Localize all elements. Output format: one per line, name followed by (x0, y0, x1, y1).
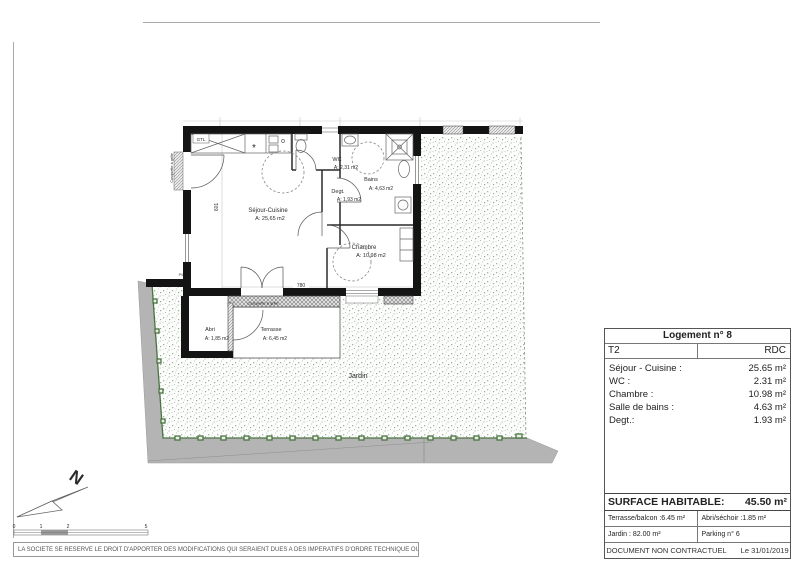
area-row: Séjour - Cuisine : 25.65 m² (609, 362, 786, 375)
pv-label: PV (179, 273, 184, 277)
surface-value: 45.50 m² (745, 496, 787, 508)
scale-mark-2: 2 (67, 524, 70, 530)
apartment-info-table: Logement n° 8 T2 RDC Séjour - Cuisine : … (604, 328, 791, 559)
area-value: 2.31 m² (754, 375, 786, 388)
room-area-terrasse: A: 6,45 m2 (263, 336, 287, 342)
canopy-label: Casquette à grille (247, 301, 279, 306)
fixtures (191, 134, 413, 261)
surface-label: SURFACE HABITABLE: (608, 496, 724, 508)
room-area-abri: A: 1,85 m2 (205, 336, 229, 342)
area-value: 10.98 m² (749, 388, 787, 401)
table-spacer (605, 427, 790, 493)
document-status: DOCUMENT NON CONTRACTUEL (606, 546, 726, 555)
area-value: 25.65 m² (749, 362, 787, 375)
dim-780: 780 (297, 283, 306, 289)
scale-mark-1: 1 (40, 524, 43, 530)
room-label-degt: Degt. (331, 189, 345, 195)
area-label: Séjour - Cuisine : (609, 362, 682, 375)
area-row: Salle de bains : 4.63 m² (609, 401, 786, 414)
apartment-type: T2 (605, 344, 698, 358)
scale-bar: 0 1 2 5 (13, 524, 148, 535)
parking-cell: Parking n° 6 (698, 527, 791, 542)
north-label: N (66, 466, 87, 489)
extras-row: Terrasse/balcon :6.45 m² Abri/séchoir :1… (605, 511, 790, 527)
hob-symbol: * (252, 143, 256, 154)
room-label-jardin: Jardin (348, 373, 367, 380)
area-label: Degt.: (609, 414, 634, 427)
gtl-label: GTL (197, 137, 206, 142)
surface-habitable-row: SURFACE HABITABLE: 45.50 m² (605, 493, 790, 511)
room-label-terrasse: Terrasse (260, 327, 281, 333)
document-footer-row: DOCUMENT NON CONTRACTUEL Le 31/01/2019 (605, 543, 790, 558)
room-area-sejour: A: 25,65 m2 (255, 216, 285, 222)
legal-disclaimer: LA SOCIETE SE RESERVE LE DROIT D'APPORTE… (13, 542, 419, 557)
garden-area (152, 137, 526, 438)
area-row: Chambre : 10.98 m² (609, 388, 786, 401)
jardin-cell: Jardin : 82.00 m² (605, 527, 698, 542)
area-label: Chambre : (609, 388, 653, 401)
area-value: 1.93 m² (754, 414, 786, 427)
room-area-degt: A: 1,93 m2 (337, 197, 361, 203)
room-areas-list: Séjour - Cuisine : 25.65 m² WC : 2.31 m²… (605, 359, 790, 427)
document-date: Le 31/01/2019 (741, 546, 789, 555)
terrasse-balcon-cell: Terrasse/balcon :6.45 m² (605, 511, 698, 526)
area-label: WC : (609, 375, 630, 388)
area-row: Degt.: 1.93 m² (609, 414, 786, 427)
area-label: Salle de bains : (609, 401, 674, 414)
scale-mark-0: 0 (13, 524, 16, 530)
area-value: 4.63 m² (754, 401, 786, 414)
room-label-bains: Bains (364, 177, 378, 183)
room-label-wc: WC (332, 157, 341, 163)
room-area-chambre: A: 10,98 m2 (356, 253, 386, 259)
apartment-floor: RDC (698, 344, 791, 358)
apartment-title: Logement n° 8 (605, 329, 790, 344)
room-area-bains: A: 4,63 m2 (369, 186, 393, 192)
room-label-abri: Abri (205, 327, 215, 333)
type-floor-row: T2 RDC (605, 344, 790, 359)
room-area-wc: A: 2,31 m2 (334, 165, 358, 171)
canopy-label-vertical: Casquette à grille (170, 153, 174, 183)
north-arrow: N (17, 466, 88, 517)
room-label-chambre: Chambre (352, 245, 377, 251)
abri-sechoir-cell: Abri/séchoir :1.85 m² (698, 511, 791, 526)
dim-601: 601 (214, 203, 220, 212)
extras-row: Jardin : 82.00 m² Parking n° 6 (605, 527, 790, 543)
room-label-sejour: Séjour-Cuisine (248, 208, 288, 214)
scale-mark-5: 5 (145, 524, 148, 530)
area-row: WC : 2.31 m² (609, 375, 786, 388)
